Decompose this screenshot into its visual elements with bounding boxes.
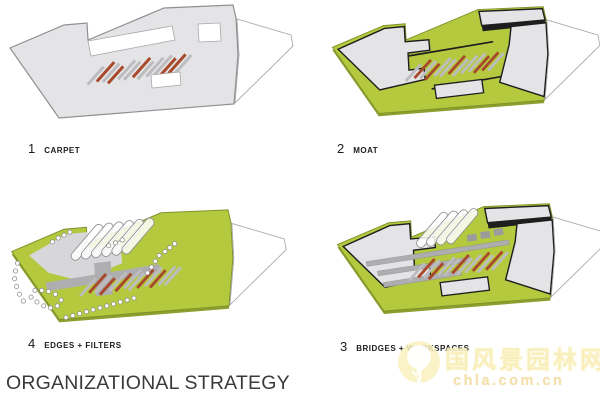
right-notch — [198, 23, 221, 42]
diagram-edges-filters — [0, 195, 300, 357]
tree-dot — [118, 300, 122, 304]
tree-dot — [132, 296, 136, 300]
bridges-workspaces-scene — [338, 204, 600, 314]
tree-dot — [55, 304, 59, 308]
tree-dot — [64, 315, 68, 319]
workspace-box — [493, 228, 503, 236]
tree-dot — [59, 298, 63, 302]
workspace-box — [480, 231, 490, 239]
tree-dot — [15, 261, 19, 265]
workspace-box — [467, 234, 477, 242]
tree-dot — [149, 265, 153, 269]
panel-label: EDGES + FILTERS — [44, 341, 121, 350]
tree-dot — [50, 240, 54, 244]
panel-label: CARPET — [44, 146, 80, 155]
site-plate — [10, 5, 238, 118]
tree-dot — [113, 241, 117, 245]
tree-dot — [33, 288, 37, 292]
panel-number: 2 — [337, 141, 344, 156]
ghost-building-outline — [235, 19, 293, 103]
tree-dot — [173, 242, 177, 246]
tree-dot — [40, 288, 44, 292]
tree-dot — [98, 306, 102, 310]
tree-dot — [13, 269, 17, 273]
tree-dot — [35, 300, 39, 304]
tree-dot — [157, 253, 161, 257]
tree-dot — [77, 312, 81, 316]
tree-dot — [163, 249, 167, 253]
caption-bridges-workspaces: 3 BRIDGES + WORKSPACES — [340, 339, 469, 354]
caption-carpet: 1 CARPET — [28, 141, 80, 156]
tree-dot — [84, 310, 88, 314]
organizational-strategy-board: 1 CARPET 2 MOAT 4 EDGES + FILTERS 3 BRID… — [0, 0, 600, 402]
tree-dot — [145, 271, 149, 275]
tree-dot — [21, 299, 25, 303]
tree-dot — [42, 304, 46, 308]
tree-dot — [48, 306, 52, 310]
tree-dot — [105, 304, 109, 308]
diagram-carpet — [0, 0, 300, 162]
carpet-scene — [10, 5, 293, 118]
diagram-bridges-workspaces — [318, 195, 600, 357]
tree-dot — [46, 289, 50, 293]
tree-dot — [71, 313, 75, 317]
tree-dot — [107, 244, 111, 248]
diagram-moat — [315, 0, 600, 162]
panel-number: 1 — [28, 141, 35, 156]
south-notch — [151, 72, 181, 88]
tree-dot — [68, 230, 72, 234]
caption-moat: 2 MOAT — [337, 141, 378, 156]
ghost-building-outline — [230, 223, 286, 304]
tree-dot — [29, 295, 33, 299]
tree-dot — [125, 298, 129, 302]
tree-dot — [153, 259, 157, 263]
tree-dot — [168, 246, 172, 250]
moat-scene — [332, 7, 599, 117]
tree-dot — [12, 277, 16, 281]
tree-dot — [14, 284, 18, 288]
panel-label: MOAT — [353, 146, 378, 155]
edges-filters-scene — [12, 210, 287, 323]
tree-dot — [120, 238, 124, 242]
ghost-building-outline — [545, 20, 600, 99]
tree-dot — [62, 233, 66, 237]
tree-dot — [91, 308, 95, 312]
panel-number: 4 — [28, 336, 35, 351]
panel-number: 3 — [340, 339, 347, 354]
tree-dot — [53, 292, 57, 296]
panel-label: BRIDGES + WORKSPACES — [356, 344, 469, 353]
tree-dot — [17, 292, 21, 296]
caption-edges-filters: 4 EDGES + FILTERS — [28, 336, 122, 351]
page-title: ORGANIZATIONAL STRATEGY — [6, 372, 290, 395]
watermark-site-url: chla.com.cn — [453, 373, 564, 389]
tree-dot — [111, 302, 115, 306]
tree-dot — [56, 236, 60, 240]
ghost-building-outline — [551, 217, 600, 297]
